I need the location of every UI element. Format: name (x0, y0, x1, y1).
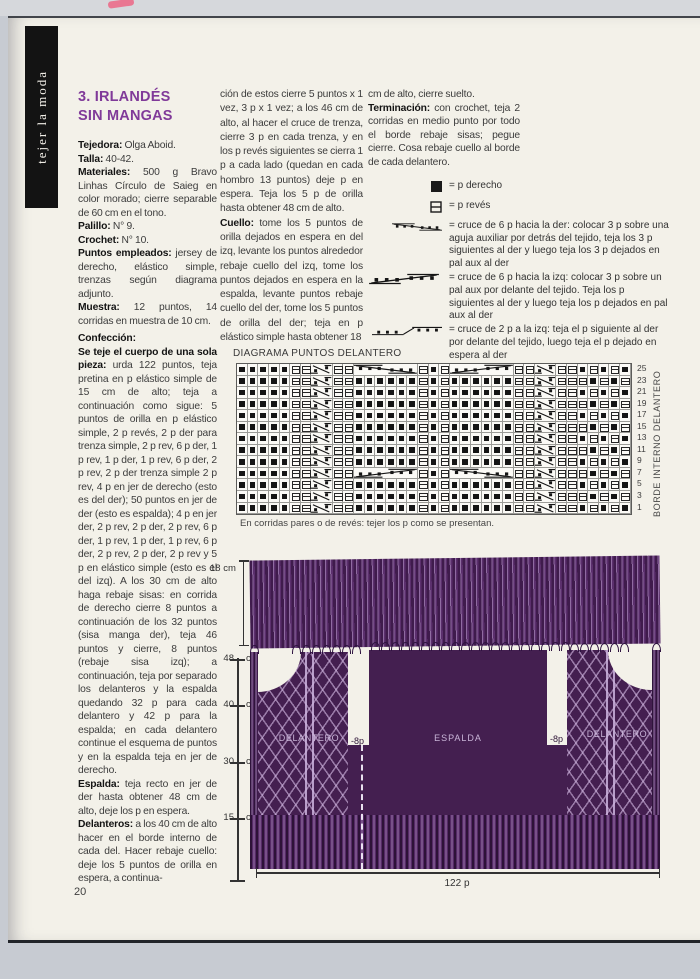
cable6-left-icon (358, 272, 449, 285)
knit-cell (365, 410, 376, 422)
purl-cell (343, 410, 354, 422)
knit-cell (258, 503, 269, 515)
front-back-divider-dashed (361, 745, 363, 869)
stitch-loop (511, 642, 520, 651)
purl-cell (439, 433, 450, 445)
chart-side-label: BORDE INTERNO DELANTERO (652, 365, 662, 517)
knit-cell (386, 491, 397, 503)
knit-cell (237, 456, 248, 468)
chart-row-number: 5 (634, 478, 650, 490)
knit-cell (450, 445, 461, 457)
knit-cell (609, 422, 620, 434)
purl-cell (301, 456, 312, 468)
knit-cell (460, 479, 471, 491)
stitch-loop (531, 642, 540, 651)
knit-cell (407, 399, 418, 411)
knit-cell (429, 387, 440, 399)
purl-cell (290, 479, 301, 491)
knit-cell (429, 468, 440, 480)
purl-cell (588, 479, 599, 491)
knit-cell (365, 422, 376, 434)
stitch-loop (342, 645, 351, 654)
purl-cell (578, 445, 589, 457)
knit-cell (503, 376, 514, 388)
stitch-loop (292, 645, 301, 654)
cable2-icon (311, 456, 332, 468)
purl-cell (514, 422, 525, 434)
knit-cell (280, 503, 291, 515)
purl-cell (599, 491, 610, 503)
knit-cell (269, 456, 280, 468)
purl-cell (599, 468, 610, 480)
left-front-label: DELANTERO (272, 733, 346, 743)
knit-cell (375, 376, 386, 388)
purl-cell (609, 456, 620, 468)
knit-cell (237, 503, 248, 515)
purl-cell (578, 376, 589, 388)
purl-cell (333, 491, 344, 503)
purl-cell (567, 376, 578, 388)
cable2-icon (535, 433, 556, 445)
purl-cell (343, 364, 354, 376)
purl-cell (333, 433, 344, 445)
knit-cell (599, 387, 610, 399)
knit-cell (280, 479, 291, 491)
purl-cell (418, 364, 429, 376)
stitch-loop (590, 643, 599, 652)
purl-cell (343, 456, 354, 468)
knit-cell (460, 387, 471, 399)
knit-cell (280, 445, 291, 457)
purl-cell (343, 433, 354, 445)
purl-cell (514, 376, 525, 388)
purl-cell (514, 399, 525, 411)
knit-cell (450, 479, 461, 491)
knit-cell (407, 445, 418, 457)
knit-cell (503, 491, 514, 503)
knit-cell (354, 410, 365, 422)
purl-cell (343, 468, 354, 480)
purl-cell (578, 491, 589, 503)
purl-cell (290, 399, 301, 411)
purl-cell (418, 445, 429, 457)
purl-cell (588, 456, 599, 468)
left-edge-band (250, 652, 258, 817)
purl-cell (567, 468, 578, 480)
knit-cell (248, 503, 259, 515)
article-title: 3. IRLANDÉS SIN MANGAS (78, 88, 223, 126)
knit-cell (492, 376, 503, 388)
stitch-loop (391, 642, 400, 651)
purl-cell (524, 422, 535, 434)
knit-cell (588, 491, 599, 503)
purl-cell (290, 491, 301, 503)
stitch-loop (561, 642, 570, 651)
knit-cell (397, 445, 408, 457)
knit-cell (599, 456, 610, 468)
symbol-legend: = p derecho= p revés= cruce de 6 p hacia… (358, 180, 670, 364)
knit-cell (620, 479, 631, 491)
knit-cell (237, 387, 248, 399)
cable2-icon (311, 387, 332, 399)
purl-cell (343, 479, 354, 491)
chart-row-numbers: 252321191715131197531 (634, 363, 650, 513)
purl-cell (301, 491, 312, 503)
knit-cell (258, 456, 269, 468)
knit-cell (429, 364, 440, 376)
purl-cell (514, 468, 525, 480)
cable6-right-icon (354, 364, 418, 376)
knit-cell (365, 503, 376, 515)
stitch-loop (421, 642, 430, 651)
knit-cell (450, 456, 461, 468)
purl-cell (418, 387, 429, 399)
knit-cell (609, 376, 620, 388)
cable2-icon (311, 410, 332, 422)
knit-cell (588, 399, 599, 411)
knit-cell (397, 503, 408, 515)
knit-cell (407, 422, 418, 434)
knit-cell (599, 479, 610, 491)
knit-cell (492, 387, 503, 399)
purl-cell (620, 491, 631, 503)
legend-item: = p revés (358, 200, 670, 213)
purl-cell (524, 503, 535, 515)
knit-cell (407, 479, 418, 491)
purl-cell (333, 399, 344, 411)
right-shoulder-loops (570, 643, 630, 652)
knit-cell (269, 376, 280, 388)
paragraph: Materiales: 500 g Bravo Linhas Círculo d… (78, 166, 217, 220)
knit-cell (503, 479, 514, 491)
purl-cell (567, 445, 578, 457)
knit-cell (503, 433, 514, 445)
purl-cell (524, 433, 535, 445)
knit-cell (471, 479, 482, 491)
purl-cell (514, 387, 525, 399)
knit-cell (460, 503, 471, 515)
knit-cell (407, 387, 418, 399)
knit-cell (450, 387, 461, 399)
knit-cell (482, 445, 493, 457)
knit-cell (365, 479, 376, 491)
knit-cell (375, 433, 386, 445)
knit-cell (482, 491, 493, 503)
stitch-loop (551, 642, 560, 651)
knit-cell (492, 479, 503, 491)
knit-cell (258, 491, 269, 503)
knit-cell (609, 468, 620, 480)
legend-item: = cruce de 2 p a la izq: teja el p sigui… (358, 324, 670, 362)
purl-cell (524, 410, 535, 422)
purl-cell (343, 422, 354, 434)
purl-cell (620, 445, 631, 457)
knit-cell (237, 364, 248, 376)
page-number: 20 (74, 886, 86, 898)
purl-cell (343, 399, 354, 411)
purl-cell (609, 387, 620, 399)
knit-cell (620, 503, 631, 515)
axis-line (237, 658, 239, 882)
stitch-loop (312, 645, 321, 654)
knit-cell (365, 433, 376, 445)
width-dimension-line (256, 868, 660, 878)
purl-cell (556, 433, 567, 445)
height-mark-value: 15 (206, 812, 234, 823)
knit-cell (471, 445, 482, 457)
knit-cell (407, 410, 418, 422)
purl-cell (556, 456, 567, 468)
purl-cell (514, 433, 525, 445)
purl-cell (524, 387, 535, 399)
magazine-page: tejer la moda 3. IRLANDÉS SIN MANGAS Tej… (8, 16, 700, 943)
purl-cell (556, 364, 567, 376)
knit-cell (450, 491, 461, 503)
knit-cell (386, 456, 397, 468)
cable2-icon (535, 468, 556, 480)
purl-cell (301, 503, 312, 515)
paragraph: Se teje el cuerpo de una sola pieza: urd… (78, 346, 217, 778)
knit-cell (397, 456, 408, 468)
purl-cell (301, 387, 312, 399)
legend-item-text: = cruce de 6 p hacia la der: colocar 3 p… (449, 220, 670, 271)
purl-cell (439, 410, 450, 422)
knit-cell (482, 422, 493, 434)
purl-cell (343, 445, 354, 457)
knit-cell (237, 433, 248, 445)
knit-cell (609, 491, 620, 503)
knit-cell (620, 456, 631, 468)
stitch-loop (620, 643, 629, 652)
back-label: ESPALDA (369, 733, 547, 743)
knit-cell (386, 399, 397, 411)
cable2-icon (535, 422, 556, 434)
purl-cell (524, 399, 535, 411)
knit-cell (269, 364, 280, 376)
knit-cell (248, 491, 259, 503)
cable2-icon (311, 491, 332, 503)
knit-cell (258, 422, 269, 434)
purl-cell (439, 376, 450, 388)
purl-cell (514, 503, 525, 515)
knit-cell (620, 387, 631, 399)
purl-cell (514, 491, 525, 503)
paragraph: Confección: (78, 332, 217, 346)
knit-cell (248, 456, 259, 468)
cable2-icon (535, 399, 556, 411)
knit-cell (354, 503, 365, 515)
knit-cell (354, 422, 365, 434)
paragraph: ción de estos cierre 5 puntos x 1 vez, 3… (220, 88, 363, 217)
knit-cell (386, 376, 397, 388)
purl-cell (418, 422, 429, 434)
collar-band-schematic (249, 555, 660, 648)
purl-cell (588, 387, 599, 399)
purl-cell (333, 364, 344, 376)
purl-cell (556, 399, 567, 411)
purl-cell (439, 468, 450, 480)
purl-cell (333, 387, 344, 399)
cable2-icon (311, 503, 332, 515)
height-mark-value: 40 (206, 699, 234, 710)
purl-cell (333, 503, 344, 515)
stitch-loop (600, 643, 609, 652)
purl-cell (439, 399, 450, 411)
purl-cell (609, 364, 620, 376)
knit-cell (354, 387, 365, 399)
knit-cell (375, 410, 386, 422)
chart-row-number: 25 (634, 363, 650, 375)
knit-cell (429, 376, 440, 388)
knit-cell (354, 445, 365, 457)
paragraph: Palillo: N° 9. (78, 220, 217, 234)
purl-cell (567, 364, 578, 376)
purl-cell (567, 410, 578, 422)
chart-row-number: 23 (634, 375, 650, 387)
purl-square-icon (358, 200, 449, 213)
stitch-loop (401, 642, 410, 651)
left-edge-loop (250, 645, 260, 654)
knit-cell (482, 399, 493, 411)
knit-cell (503, 399, 514, 411)
paragraph: Puntos empleados: jersey de derecho, elá… (78, 247, 217, 301)
purl-cell (524, 456, 535, 468)
knit-cell (450, 376, 461, 388)
knit-cell (492, 410, 503, 422)
knit-cell (280, 410, 291, 422)
knit-cell (365, 445, 376, 457)
knit-cell (460, 422, 471, 434)
purl-cell (333, 479, 344, 491)
knit-cell (269, 445, 280, 457)
knit-cell (503, 410, 514, 422)
knit-cell (269, 468, 280, 480)
purl-cell (609, 410, 620, 422)
chart-row-number: 17 (634, 409, 650, 421)
knit-cell (429, 456, 440, 468)
purl-cell (578, 422, 589, 434)
instructions-column-1: Confección:Se teje el cuerpo de una sola… (78, 332, 217, 886)
chart-title: DIAGRAMA PUNTOS DELANTERO (233, 348, 401, 359)
purl-cell (609, 433, 620, 445)
purl-cell (343, 491, 354, 503)
paragraph: Crochet: N° 10. (78, 234, 217, 248)
stitch-loop (451, 642, 460, 651)
stitch-loop (352, 645, 361, 654)
knit-cell (386, 410, 397, 422)
cable6-right-icon (358, 220, 449, 233)
purl-cell (333, 410, 344, 422)
knit-cell (280, 468, 291, 480)
knit-cell (460, 433, 471, 445)
purl-cell (514, 479, 525, 491)
knit-cell (237, 479, 248, 491)
knit-cell (375, 503, 386, 515)
section-tab: tejer la moda (25, 26, 58, 208)
knit-cell (429, 445, 440, 457)
knit-cell (248, 364, 259, 376)
purl-cell (620, 468, 631, 480)
purl-cell (567, 399, 578, 411)
paragraph: Cuello: tome los 5 puntos de orilla deja… (220, 217, 363, 346)
height-mark-value: 48 (206, 653, 234, 664)
height-mark-value: 30 (206, 756, 234, 767)
purl-cell (290, 445, 301, 457)
purl-cell (567, 503, 578, 515)
knit-cell (578, 387, 589, 399)
knit-cell (269, 479, 280, 491)
knit-cell (248, 433, 259, 445)
knit-cell (620, 410, 631, 422)
cable6-right-icon (450, 468, 514, 480)
knit-cell (397, 410, 408, 422)
knit-cell (386, 422, 397, 434)
chart-row-number: 19 (634, 398, 650, 410)
purl-cell (609, 503, 620, 515)
knit-cell (397, 399, 408, 411)
purl-cell (301, 376, 312, 388)
knit-cell (237, 410, 248, 422)
cable2-icon (311, 364, 332, 376)
cable2-icon (535, 503, 556, 515)
knit-cell (407, 376, 418, 388)
purl-cell (439, 387, 450, 399)
knit-cell (460, 399, 471, 411)
knit-cell (599, 364, 610, 376)
knit-cell (429, 433, 440, 445)
right-front-label: DELANTERO (580, 729, 654, 739)
purl-cell (588, 503, 599, 515)
knit-cell (248, 399, 259, 411)
purl-cell (333, 422, 344, 434)
cable2-icon (535, 479, 556, 491)
knit-cell (471, 433, 482, 445)
instructions-column-2: ción de estos cierre 5 puntos x 1 vez, 3… (220, 88, 363, 345)
stitch-loop (471, 642, 480, 651)
cable2-icon (311, 422, 332, 434)
stitch-loop (322, 645, 331, 654)
purl-cell (290, 433, 301, 445)
purl-cell (290, 410, 301, 422)
knit-cell (450, 422, 461, 434)
purl-cell (333, 456, 344, 468)
knit-cell (269, 410, 280, 422)
knit-cell (375, 479, 386, 491)
knit-cell (460, 376, 471, 388)
knit-cell (365, 376, 376, 388)
knit-cell (248, 387, 259, 399)
purl-cell (599, 376, 610, 388)
knit-cell (429, 422, 440, 434)
knit-cell (248, 422, 259, 434)
knit-cell (354, 456, 365, 468)
knit-cell (599, 410, 610, 422)
stitch-loop (441, 642, 450, 651)
purl-cell (301, 479, 312, 491)
purl-cell (578, 399, 589, 411)
purl-cell (556, 479, 567, 491)
purl-cell (301, 422, 312, 434)
purl-cell (290, 387, 301, 399)
knit-cell (248, 468, 259, 480)
right-edge-loop (652, 643, 662, 652)
knit-cell (609, 399, 620, 411)
stitch-loop (332, 645, 341, 654)
purl-cell (524, 479, 535, 491)
cable6-left-icon (450, 364, 514, 376)
stitch-loop (501, 642, 510, 651)
purl-cell (290, 422, 301, 434)
